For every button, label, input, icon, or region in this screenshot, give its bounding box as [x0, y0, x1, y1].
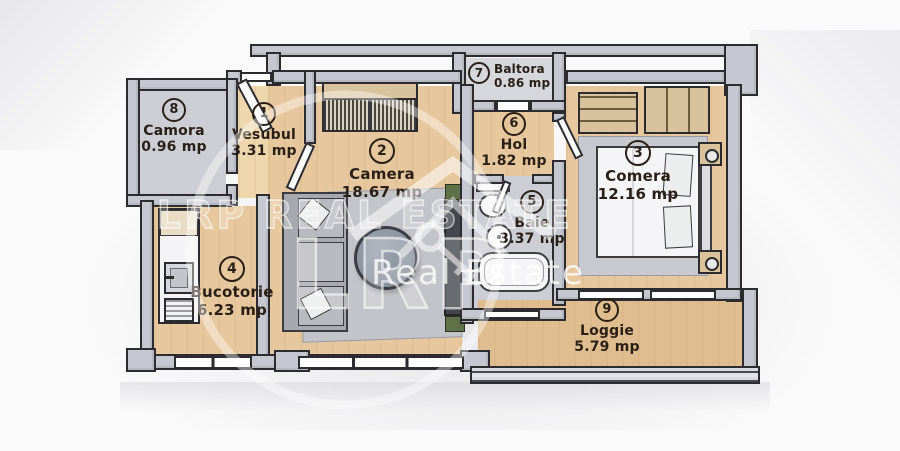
- wall-left-lower: [140, 200, 154, 358]
- room-name: Comera: [605, 167, 671, 185]
- wardrobe: [644, 86, 710, 134]
- room-name: Camora: [143, 123, 204, 139]
- living-room-window: [298, 356, 464, 369]
- wall-top-b: [272, 70, 462, 84]
- room-area: 6.23 mp: [197, 301, 267, 319]
- wall-top-bedroom: [566, 70, 726, 84]
- wall-hol-baie-a: [474, 174, 504, 184]
- room-area: 3.37 mp: [499, 231, 564, 247]
- wall-loggia-right: [742, 288, 758, 376]
- wall-hol-north-right: [530, 100, 566, 112]
- room-label-baltora: 7 Baltora 0.86 mp: [468, 62, 560, 90]
- room-label-vestibul: 1 Vesubul 3.31 mp: [218, 102, 310, 159]
- wall-camera-bath: [460, 84, 474, 324]
- wall-corner-bottom-left: [126, 348, 156, 372]
- coffee-table: [354, 226, 418, 290]
- bedroom-loggia-window: [650, 290, 716, 300]
- balcony-door-threshold: [496, 100, 530, 112]
- room-area: 5.79 mp: [574, 339, 639, 355]
- bookshelf: [322, 82, 418, 132]
- room-label-bucotorie: 4 Bucotorie 6.23 mp: [182, 256, 282, 319]
- room-label-loggie: 9 Loggie 5.79 mp: [562, 298, 652, 355]
- bathtub: [478, 252, 550, 292]
- room-label-comera: 3 Comera 12.16 mp: [592, 140, 684, 203]
- lamp: [705, 257, 719, 271]
- bed-pillow: [663, 205, 693, 248]
- corner-shade-top-right: [750, 30, 900, 310]
- wall-hol-baie-b: [532, 174, 554, 184]
- front-apron-shadow: [120, 382, 770, 412]
- wall-right-outer: [726, 84, 742, 302]
- room-area: 0.86 mp: [494, 76, 550, 90]
- room-area: 3.31 mp: [231, 143, 296, 159]
- room-area: 0.96 mp: [141, 139, 206, 155]
- room-number-badge: 1: [252, 102, 276, 126]
- room-number-badge: 8: [162, 98, 186, 122]
- room-name: Vesubul: [232, 127, 296, 143]
- room-number-badge: 4: [219, 256, 245, 282]
- kitchen-window: [174, 356, 252, 369]
- loggia-railing: [470, 366, 760, 384]
- nightstand: [698, 250, 722, 274]
- kitchen-upper-cabinet: [160, 210, 198, 236]
- room-number-badge: 5: [520, 190, 544, 214]
- baie-loggia-window: [484, 310, 540, 319]
- floor-plan-canvas: 8 Camora 0.96 mp 1 Vesubul 3.31 mp 2 Cam…: [0, 0, 900, 451]
- room-area: 12.16 mp: [598, 185, 679, 203]
- wall-top-beam: [250, 44, 756, 57]
- room-name: Camera: [349, 165, 415, 183]
- room-number-badge: 7: [468, 62, 490, 84]
- room-number-badge: 3: [625, 140, 651, 166]
- room-number-badge: 2: [369, 138, 395, 164]
- room-name: Baie: [514, 215, 549, 231]
- room-label-camora: 8 Camora 0.96 mp: [128, 98, 220, 155]
- room-area: 1.82 mp: [481, 153, 546, 169]
- room-number-badge: 6: [502, 112, 526, 136]
- wall-camora-top: [126, 78, 232, 91]
- dresser: [578, 92, 638, 134]
- room-label-camera: 2 Camera 18.67 mp: [334, 138, 430, 201]
- room-label-baie: 5 Baie 3.37 mp: [494, 190, 570, 247]
- nightstand: [698, 142, 722, 166]
- room-name: Loggie: [580, 323, 634, 339]
- sofa: [282, 192, 348, 332]
- faucet-icon: [164, 276, 174, 279]
- lamp: [705, 149, 719, 163]
- room-name: Bucotorie: [190, 283, 273, 301]
- room-name: Baltora: [494, 62, 545, 76]
- room-name: Hol: [501, 137, 528, 153]
- room-label-hol: 6 Hol 1.82 mp: [478, 112, 550, 169]
- room-number-badge: 9: [595, 298, 619, 322]
- room-area: 18.67 mp: [342, 183, 423, 201]
